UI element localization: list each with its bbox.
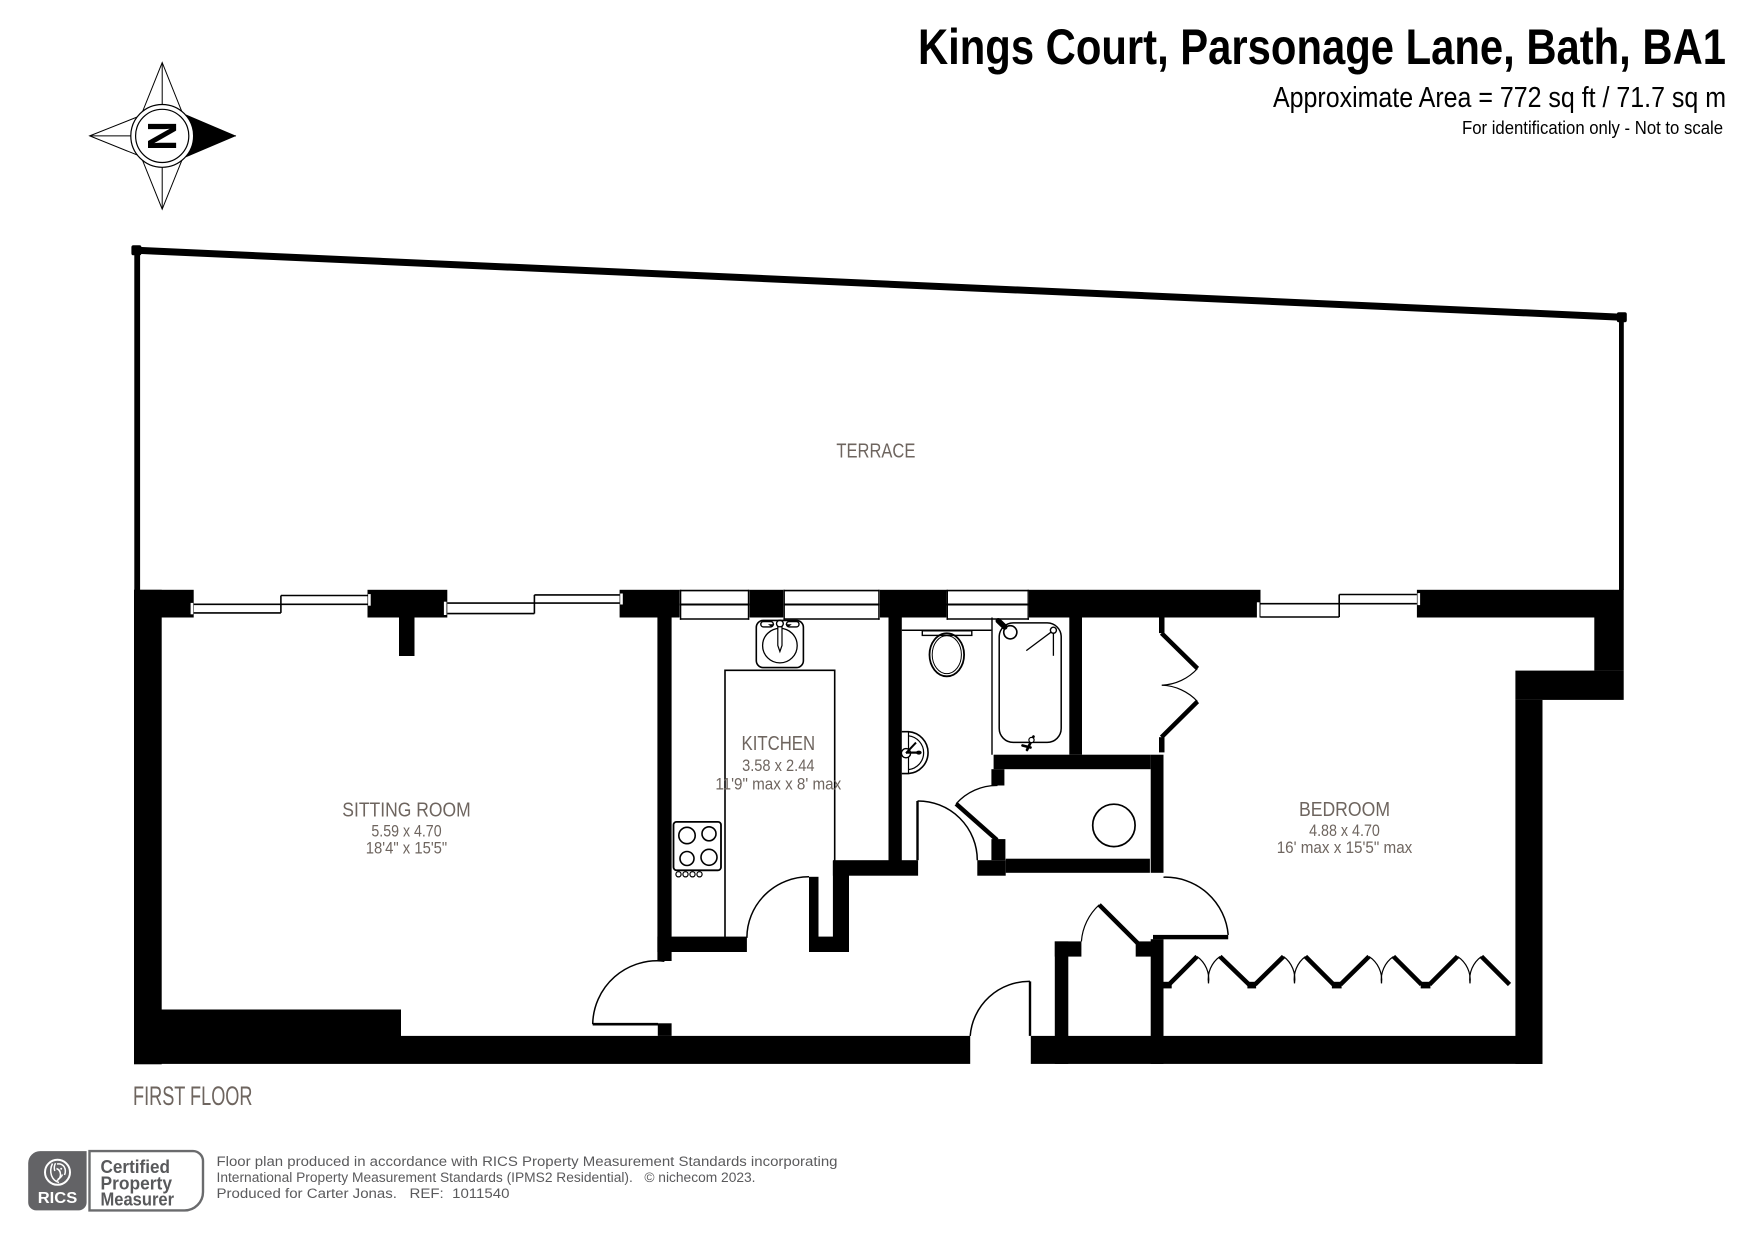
- svg-text:16' max x 15'5" max: 16' max x 15'5" max: [1277, 839, 1413, 857]
- svg-text:TERRACE: TERRACE: [836, 441, 915, 463]
- svg-text:Approximate Area = 772 sq ft /: Approximate Area = 772 sq ft / 71.7 sq m: [1273, 82, 1726, 114]
- svg-text:Kings Court, Parsonage Lane, B: Kings Court, Parsonage Lane, Bath, BA1: [918, 19, 1726, 75]
- svg-text:Produced for Carter Jonas. R: Produced for Carter Jonas. REF: 1011540: [217, 1186, 510, 1202]
- svg-text:N: N: [139, 121, 185, 151]
- svg-text:SITTING ROOM: SITTING ROOM: [342, 799, 470, 822]
- svg-text:Measurer: Measurer: [101, 1190, 175, 1210]
- svg-text:5.59 x 4.70: 5.59 x 4.70: [371, 823, 441, 841]
- svg-text:18'4" x 15'5": 18'4" x 15'5": [366, 839, 448, 857]
- svg-text:Floor plan produced in accorda: Floor plan produced in accordance with R…: [217, 1154, 838, 1170]
- svg-text:International Property Measure: International Property Measurement Stand…: [217, 1170, 756, 1186]
- svg-text:For identification only - Not: For identification only - Not to scale: [1462, 117, 1723, 138]
- svg-text:FIRST FLOOR: FIRST FLOOR: [133, 1081, 253, 1111]
- svg-text:11'9" max x 8' max: 11'9" max x 8' max: [715, 775, 842, 793]
- svg-text:BEDROOM: BEDROOM: [1299, 798, 1390, 821]
- svg-text:RICS: RICS: [38, 1190, 78, 1207]
- svg-text:3.58 x 2.44: 3.58 x 2.44: [742, 757, 814, 775]
- svg-text:KITCHEN: KITCHEN: [742, 732, 816, 755]
- svg-text:4.88 x 4.70: 4.88 x 4.70: [1309, 822, 1380, 840]
